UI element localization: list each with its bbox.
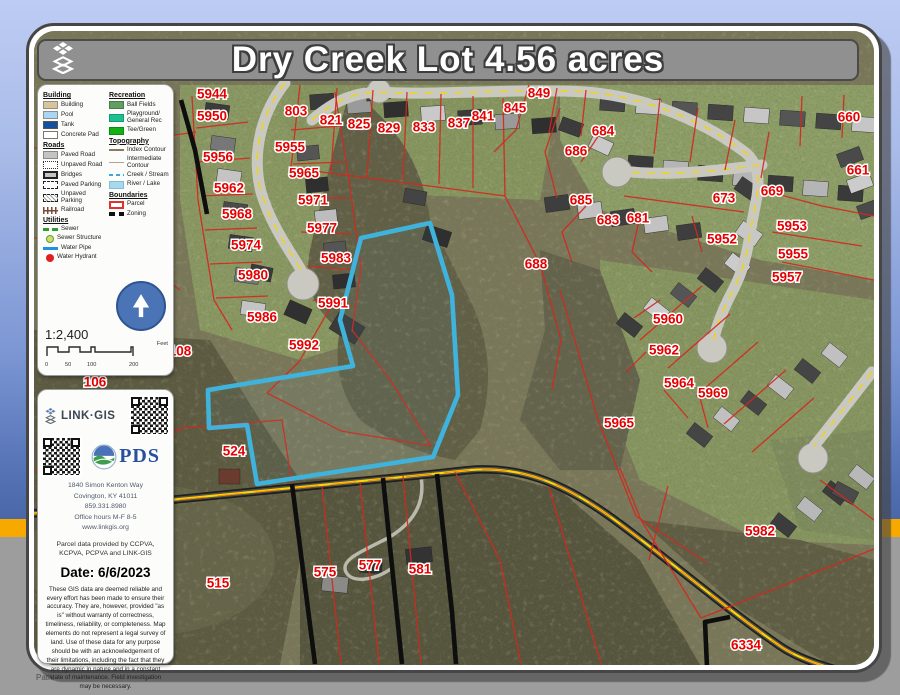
building-swatch — [43, 101, 58, 109]
page: Path: — [0, 0, 900, 695]
linkgis-logo: LINK·GIS — [43, 408, 115, 424]
parcel-label: 5974 — [231, 238, 262, 253]
legend-item-label: Unpaved Parking — [61, 191, 104, 205]
legend-item-label: Paved Parking — [61, 182, 101, 189]
legend-item-label: Railroad — [61, 207, 84, 214]
house — [744, 107, 770, 124]
legend-item: Concrete Pad — [43, 131, 104, 139]
scale-ticks: 050100200 — [45, 362, 167, 370]
house — [219, 469, 240, 484]
legend-item: River / Lake — [109, 181, 170, 189]
legend-item-label: Ball Fields — [127, 102, 156, 109]
address-line: 1840 Simon Kenton Way — [43, 481, 168, 492]
parcel-label: 5991 — [318, 296, 349, 311]
playground-swatch — [109, 114, 124, 122]
index-contour-swatch — [109, 149, 124, 151]
pds-wordmark: PDS — [119, 445, 160, 468]
address-line: 859.331.8980 — [43, 502, 168, 513]
legend-item: Water Pipe — [43, 245, 104, 252]
legend-section-title: Building — [43, 92, 104, 99]
legend-section-title: Utilities — [43, 217, 104, 224]
parcel-label: 5957 — [772, 270, 802, 285]
legend-section-title: Topography — [109, 138, 170, 145]
legend-item-label: Parcel — [127, 201, 145, 208]
parcel-label: 575 — [314, 565, 337, 580]
parcel-label: 577 — [359, 558, 382, 573]
address-block: 1840 Simon Kenton WayCovington, KY 41011… — [43, 481, 168, 534]
legend-item: Tee/Green — [109, 127, 170, 135]
parcel-label: 6334 — [731, 638, 762, 653]
sewer-structure-swatch — [46, 235, 54, 243]
legend-item-label: Playground/ General Rec — [127, 111, 170, 125]
address-line: Office hours M-F 8-5 — [43, 513, 168, 524]
legend-item: Parcel — [109, 201, 170, 209]
parcel-label: 686 — [565, 144, 588, 159]
legend-section-title: Roads — [43, 142, 104, 149]
parcel-label: 821 — [320, 113, 343, 128]
parcel-label: 845 — [504, 101, 527, 116]
water-pipe-swatch — [43, 247, 58, 250]
scale-unit: Feet — [157, 341, 168, 347]
parcel-label: 661 — [847, 163, 870, 178]
legend-item-label: Concrete Pad — [61, 132, 99, 139]
pds-row: PDS — [43, 438, 168, 475]
map-date: Date: 6/6/2023 — [43, 565, 168, 580]
scale-tick: 0 — [45, 362, 48, 368]
legend-panel: BuildingBuildingPoolTankConcrete PadRoad… — [37, 84, 174, 376]
parcel-label: 5952 — [707, 232, 737, 247]
unpaved-parking-swatch — [43, 194, 58, 202]
legend-item-label: Creek / Stream — [127, 172, 169, 179]
parcel-label: 5965 — [604, 416, 635, 431]
railroad-swatch — [43, 207, 58, 214]
pool-swatch — [43, 111, 58, 119]
parcel-label: 5980 — [238, 268, 268, 283]
scale-tick: 100 — [87, 362, 96, 368]
legend-item-label: Index Contour — [127, 147, 166, 154]
legend-item: Unpaved Parking — [43, 191, 104, 205]
legend-section-title: Recreation — [109, 92, 170, 99]
scale-bar — [45, 343, 155, 357]
parcel-label: 803 — [285, 104, 308, 119]
pds-logo: PDS — [91, 444, 160, 470]
legend-item-label: Tank — [61, 122, 74, 129]
parcel-label: 5955 — [275, 140, 306, 155]
parcel-label: 681 — [627, 211, 650, 226]
scale-tick: 200 — [129, 362, 138, 368]
parcel-label: 5944 — [197, 87, 228, 102]
legend-item-label: Pool — [61, 112, 73, 119]
parcel-label: 5968 — [222, 207, 253, 222]
legend-item: Paved Parking — [43, 181, 104, 189]
parcel-label: 5986 — [247, 310, 278, 325]
parcel-label: 5969 — [698, 386, 728, 401]
legend-item-label: Unpaved Road — [61, 162, 102, 169]
water-hydrant-swatch — [46, 254, 54, 262]
parcel-label: 5953 — [777, 219, 808, 234]
legend-item: Playground/ General Rec — [109, 111, 170, 125]
map-title: Dry Creek Lot 4.56 acres — [39, 41, 857, 79]
parcel-label: 849 — [528, 86, 551, 101]
parcel-label: 5964 — [664, 376, 695, 391]
legend-item-label: Paved Road — [61, 152, 95, 159]
parcel-label: 825 — [348, 117, 371, 132]
legend-item: Building — [43, 101, 104, 109]
parcel-label: 5965 — [289, 166, 320, 181]
linkgis-diamond-icon — [43, 408, 58, 424]
parcel-label: 5971 — [298, 193, 329, 208]
parcel-label: 515 — [207, 576, 230, 591]
parcel-label: 660 — [838, 110, 861, 125]
parcel-label: 524 — [223, 444, 246, 459]
scale-tick: 50 — [65, 362, 71, 368]
qr-code-2 — [43, 438, 80, 475]
parcel-label: 829 — [378, 121, 401, 136]
legend-item: Water Hydrant — [43, 254, 104, 262]
parcel-label: 833 — [413, 120, 436, 135]
parcel-label: 841 — [472, 109, 495, 124]
parcel-label: 5962 — [214, 181, 244, 196]
parcel-label: 5955 — [778, 247, 809, 262]
house — [708, 104, 734, 121]
north-arrow — [116, 281, 166, 331]
legend-item-label: Intermediate Contour — [127, 156, 170, 170]
paved-road-swatch — [43, 151, 58, 159]
parcel-swatch — [109, 201, 124, 209]
river-swatch — [109, 181, 124, 189]
address-line: www.linkgis.org — [43, 523, 168, 534]
parcel-label: 684 — [592, 124, 615, 139]
parcel-label: 5956 — [203, 150, 234, 165]
legend-item: Index Contour — [109, 147, 170, 154]
disclaimer-text: These GIS data are deemed reliable and e… — [45, 586, 166, 693]
parcel-label: 669 — [761, 184, 784, 199]
legend-item: Intermediate Contour — [109, 156, 170, 170]
linkgis-wordmark: LINK·GIS — [61, 410, 115, 422]
legend-item: Zoning — [109, 211, 170, 218]
ball-fields-swatch — [109, 101, 124, 109]
scale-block: 1:2,400 050100200 Feet — [45, 327, 167, 370]
pds-globe-icon — [91, 444, 117, 470]
sewer-swatch — [43, 228, 58, 231]
zoning-swatch — [109, 212, 124, 216]
parcel-label: 5960 — [653, 312, 683, 327]
legend-item-label: Tee/Green — [127, 127, 156, 134]
intermediate-contour-swatch — [109, 162, 124, 163]
legend-item-label: Sewer — [61, 226, 79, 233]
parcel-label: 837 — [448, 116, 471, 131]
legend-item: Paved Road — [43, 151, 104, 159]
legend-item-label: Sewer Structure — [57, 235, 101, 242]
map-title-bar: Dry Creek Lot 4.56 acres — [37, 39, 859, 81]
scale-ratio: 1:2,400 — [45, 327, 167, 342]
parcel-label: 683 — [597, 213, 620, 228]
legend-item-label: Zoning — [127, 211, 146, 218]
parcel-label: 5983 — [321, 251, 352, 266]
house — [384, 101, 409, 118]
house — [803, 180, 829, 197]
tee-green-swatch — [109, 127, 124, 135]
legend-item: Ball Fields — [109, 101, 170, 109]
legend-section-title: Boundaries — [109, 192, 170, 199]
legend-item-label: Water Hydrant — [57, 254, 97, 261]
legend-item: Tank — [43, 121, 104, 129]
legend-item: Sewer — [43, 226, 104, 233]
legend-item-label: River / Lake — [127, 181, 160, 188]
house — [495, 113, 520, 130]
legend-item: Creek / Stream — [109, 172, 170, 179]
parcel-label: 685 — [570, 193, 593, 208]
parcel-data-source: Parcel data provided by CCPVA, KCPVA, PC… — [48, 540, 163, 559]
parcel-label: 673 — [713, 191, 736, 206]
concrete-swatch — [43, 131, 58, 139]
parcel-label: 5977 — [307, 221, 337, 236]
parcel-label: 5950 — [197, 109, 227, 124]
info-panel: LINK·GIS PDS 1840 Simon Kenton WayCoving… — [37, 389, 174, 664]
parcel-label: 581 — [409, 562, 432, 577]
legend-item-label: Bridges — [61, 172, 82, 179]
legend-item: Pool — [43, 111, 104, 119]
legend-item-label: Building — [61, 102, 83, 109]
legend-item: Unpaved Road — [43, 161, 104, 169]
parcel-label: 688 — [525, 257, 548, 272]
parcel-label: 5992 — [289, 338, 319, 353]
tank-swatch — [43, 121, 58, 129]
parcel-label: 5962 — [649, 343, 679, 358]
house — [532, 117, 557, 134]
parcel-label: 106 — [84, 375, 107, 390]
parcel-label: 5982 — [745, 524, 775, 539]
bridge-swatch — [43, 171, 58, 179]
brand-row: LINK·GIS — [43, 397, 168, 434]
legend-item: Railroad — [43, 207, 104, 214]
creek-swatch — [109, 174, 124, 176]
qr-code — [131, 397, 168, 434]
unpaved-road-swatch — [43, 161, 58, 169]
legend-item: Bridges — [43, 171, 104, 179]
legend-item: Sewer Structure — [43, 235, 104, 243]
address-line: Covington, KY 41011 — [43, 492, 168, 503]
paved-parking-swatch — [43, 181, 58, 189]
legend-item-label: Water Pipe — [61, 245, 91, 252]
